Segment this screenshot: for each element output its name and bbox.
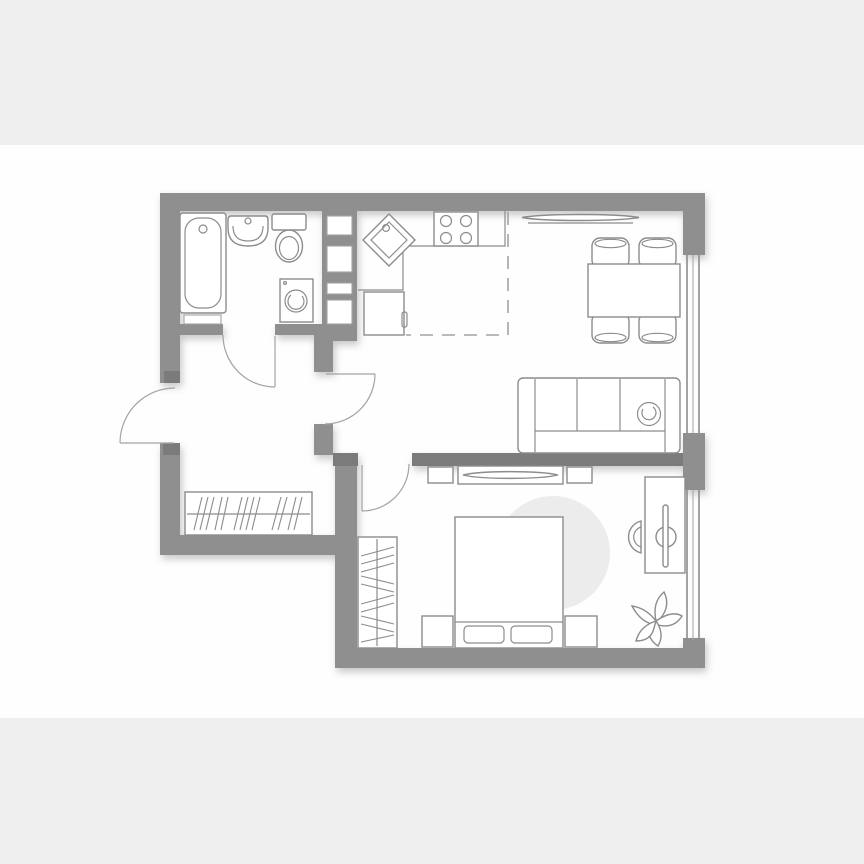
wall-bath-bottom-right (275, 324, 322, 335)
nightstand-right (565, 616, 597, 647)
wall-right-top-corner (683, 193, 705, 255)
dining-table (588, 264, 680, 317)
page: { "page": { "width": 864, "height": 864,… (0, 0, 864, 864)
shaft-opening (327, 216, 352, 235)
tv-lens (463, 472, 558, 479)
duct-shaft (327, 216, 352, 324)
bedroom (358, 466, 685, 648)
bedroom-door (362, 464, 409, 511)
entry-jamb-bottom (163, 443, 180, 455)
kitchen (358, 211, 508, 335)
double-bed (455, 517, 563, 648)
floor-plan-svg (0, 0, 864, 864)
wall-bath-bottom-left (180, 324, 223, 335)
bathtub (180, 213, 226, 313)
living-room-door (325, 374, 375, 424)
shaft-opening (327, 283, 352, 294)
nightstand-left (422, 616, 453, 647)
plant (632, 592, 682, 646)
wash-basin (228, 216, 268, 246)
bath-shelf (184, 315, 221, 324)
shaft-opening (327, 300, 352, 324)
bathroom-door (223, 335, 275, 387)
wall-left-upper (160, 193, 180, 383)
wall-hall-divider-lower (314, 424, 333, 455)
entry-door (120, 388, 175, 443)
sofa-three-seat (518, 378, 680, 453)
wall-right-bottom-corner (683, 638, 705, 668)
hallway-wardrobe (185, 492, 312, 535)
bathroom (180, 213, 313, 324)
bedroom-wardrobe (358, 537, 397, 648)
entry-jamb-top (164, 371, 180, 383)
living-room-window (687, 255, 699, 433)
speaker-right (567, 467, 592, 483)
wall-bedroom-bottom (335, 648, 705, 668)
wall-bedroom-left (335, 453, 357, 650)
bedroom-window (687, 490, 699, 640)
shaft-opening (327, 246, 352, 272)
toilet (272, 214, 306, 262)
wall-bedroom-top-left-stub (333, 453, 358, 466)
wall-top (160, 193, 705, 211)
wall-hall-divider-upper (314, 335, 333, 372)
stove-four-burners (434, 212, 478, 246)
washing-machine (280, 279, 313, 322)
desk-chair (629, 521, 641, 553)
wall-right-pier (683, 433, 705, 490)
fridge (364, 292, 407, 335)
wall-closet-bottom (160, 535, 357, 555)
living-dining (518, 215, 680, 454)
speaker-left (428, 467, 453, 483)
tv-console (428, 466, 592, 484)
diagonal-sink (363, 214, 415, 266)
desk-area (629, 477, 685, 573)
wall-bedroom-top (412, 453, 683, 466)
wall-tv (522, 215, 639, 224)
